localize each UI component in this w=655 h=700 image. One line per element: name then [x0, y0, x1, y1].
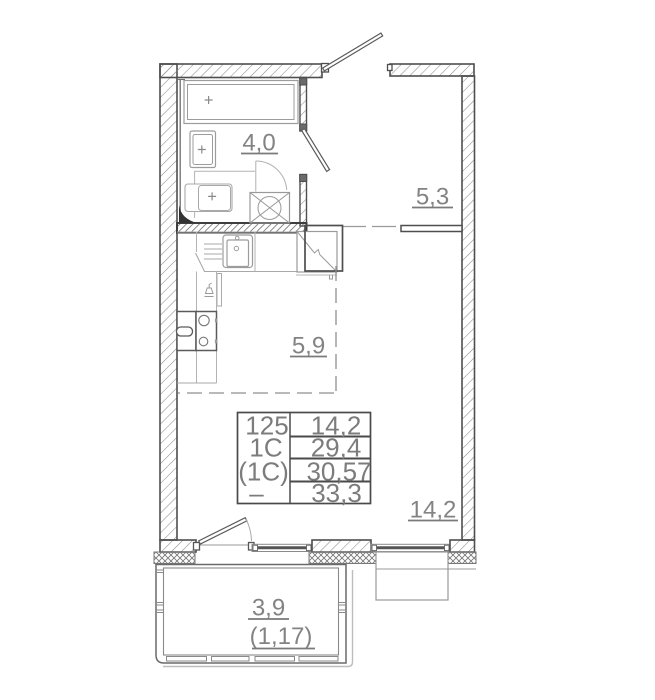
svg-text:5,9: 5,9 — [292, 333, 325, 360]
svg-text:–: – — [249, 478, 264, 508]
svg-text:33,3: 33,3 — [311, 478, 362, 508]
svg-text:4,0: 4,0 — [242, 130, 275, 157]
svg-text:(1,17): (1,17) — [250, 623, 313, 650]
svg-text:5,3: 5,3 — [416, 184, 449, 211]
svg-text:3,9: 3,9 — [252, 595, 285, 622]
svg-text:14,2: 14,2 — [410, 497, 457, 524]
